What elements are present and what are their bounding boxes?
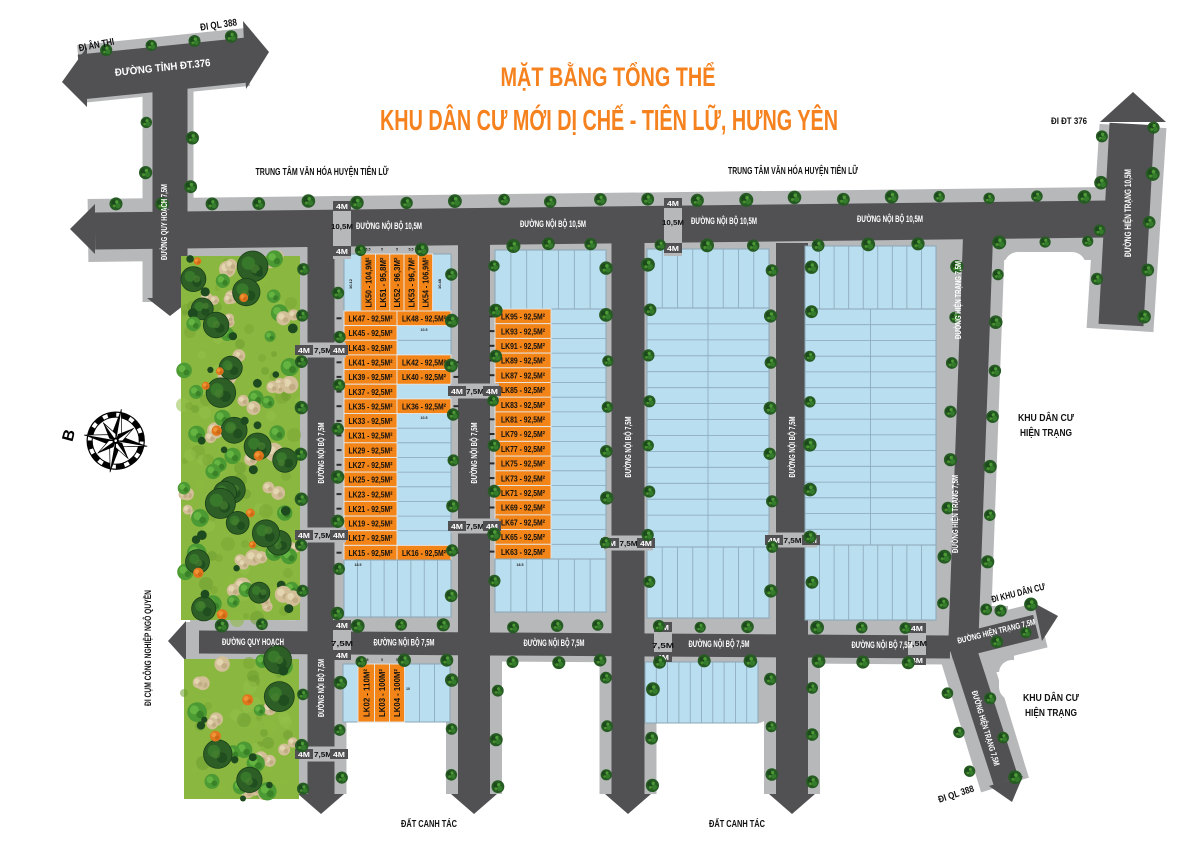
svg-text:4M: 4M bbox=[333, 348, 345, 355]
svg-text:4M: 4M bbox=[911, 626, 923, 633]
svg-text:LK43 - 92,5M²: LK43 - 92,5M² bbox=[349, 343, 393, 353]
svg-text:ĐI ĐT 376: ĐI ĐT 376 bbox=[1051, 116, 1087, 127]
svg-text:4M: 4M bbox=[486, 389, 498, 396]
svg-text:4M: 4M bbox=[298, 752, 310, 759]
svg-text:7,5M: 7,5M bbox=[784, 536, 802, 545]
svg-text:ĐƯỜNG HIỆN TRẠNG 7,5M: ĐƯỜNG HIỆN TRẠNG 7,5M bbox=[949, 475, 960, 553]
svg-text:LK75 - 92,5M²: LK75 - 92,5M² bbox=[501, 459, 545, 469]
svg-text:4M: 4M bbox=[667, 201, 679, 208]
svg-text:ĐƯỜNG NỘI BỘ 7,5M: ĐƯỜNG NỘI BỘ 7,5M bbox=[315, 423, 326, 484]
svg-text:ĐƯỜNG HIỆN TRẠNG 10,5M: ĐƯỜNG HIỆN TRẠNG 10,5M bbox=[1122, 169, 1133, 257]
svg-text:LK47 - 92,5M²: LK47 - 92,5M² bbox=[349, 314, 393, 324]
svg-text:LK77 - 92,5M²: LK77 - 92,5M² bbox=[501, 444, 545, 454]
svg-text:4M: 4M bbox=[298, 533, 310, 540]
svg-text:ĐƯỜNG NỘI BỘ 7,5M: ĐƯỜNG NỘI BỘ 7,5M bbox=[374, 637, 435, 648]
svg-text:KHU DÂN CƯ MỚI DỊ CHẾ - TIÊN L: KHU DÂN CƯ MỚI DỊ CHẾ - TIÊN LỮ, HƯNG YÊ… bbox=[380, 103, 838, 137]
svg-text:7,5M: 7,5M bbox=[620, 539, 638, 548]
svg-text:4M: 4M bbox=[640, 541, 652, 548]
svg-text:4M: 4M bbox=[333, 533, 345, 540]
svg-text:ĐƯỜNG NỘI BỘ 10,5M: ĐƯỜNG NỘI BỘ 10,5M bbox=[691, 215, 757, 226]
svg-text:ĐƯỜNG NỘI BỘ 10,5M: ĐƯỜNG NỘI BỘ 10,5M bbox=[356, 220, 422, 231]
svg-text:10.12: 10.12 bbox=[348, 278, 353, 289]
svg-text:ĐẤT CANH TÁC: ĐẤT CANH TÁC bbox=[401, 817, 457, 830]
svg-text:LK04 - 100M²: LK04 - 100M² bbox=[392, 669, 402, 717]
svg-text:HIỆN TRẠNG: HIỆN TRẠNG bbox=[1025, 706, 1077, 719]
svg-text:7,5M: 7,5M bbox=[466, 522, 484, 531]
svg-text:LK50 - 104,9M²: LK50 - 104,9M² bbox=[363, 257, 373, 307]
svg-text:LK02 - 110M²: LK02 - 110M² bbox=[361, 669, 371, 717]
svg-text:LK52 - 96,3M²: LK52 - 96,3M² bbox=[392, 257, 402, 307]
svg-text:LK42 - 92,5M²: LK42 - 92,5M² bbox=[402, 358, 446, 368]
svg-text:LK48 - 92,5M²: LK48 - 92,5M² bbox=[402, 314, 446, 324]
svg-text:LK39 - 92,5M²: LK39 - 92,5M² bbox=[349, 372, 393, 382]
svg-text:LK79 - 92,5M²: LK79 - 92,5M² bbox=[501, 429, 545, 439]
svg-text:ĐƯỜNG NỘI BỘ 7,5M: ĐƯỜNG NỘI BỘ 7,5M bbox=[786, 417, 797, 478]
svg-text:7,5M: 7,5M bbox=[314, 750, 332, 759]
svg-text:LK37 - 92,5M²: LK37 - 92,5M² bbox=[349, 387, 393, 397]
svg-text:LK89 - 92,5M²: LK89 - 92,5M² bbox=[501, 356, 545, 366]
svg-text:7,5M: 7,5M bbox=[331, 639, 353, 648]
svg-text:ĐƯỜNG HIỆN TRẠNG 7,5M: ĐƯỜNG HIỆN TRẠNG 7,5M bbox=[952, 261, 963, 339]
svg-text:ĐƯỜNG NỘI BỘ 10,5M: ĐƯỜNG NỘI BỘ 10,5M bbox=[520, 218, 586, 229]
svg-text:4M: 4M bbox=[336, 249, 348, 256]
svg-text:ĐẤT CANH TÁC: ĐẤT CANH TÁC bbox=[709, 817, 765, 830]
svg-text:7,5M: 7,5M bbox=[652, 641, 674, 650]
svg-text:5: 5 bbox=[396, 248, 398, 252]
svg-text:5: 5 bbox=[381, 248, 383, 252]
svg-text:4M: 4M bbox=[451, 389, 463, 396]
svg-text:LK40 - 92,5M²: LK40 - 92,5M² bbox=[402, 372, 446, 382]
svg-text:LK17 - 92,5M²: LK17 - 92,5M² bbox=[349, 533, 393, 543]
svg-text:LK19 - 92,5M²: LK19 - 92,5M² bbox=[349, 519, 393, 529]
svg-text:18.5: 18.5 bbox=[517, 563, 524, 567]
svg-text:ĐƯỜNG NỘI BỘ 10,5M: ĐƯỜNG NỘI BỘ 10,5M bbox=[857, 213, 923, 224]
svg-text:ĐƯỜNG NỘI BỘ 7,5M: ĐƯỜNG NỘI BỘ 7,5M bbox=[468, 423, 479, 484]
svg-text:LK65 - 92,5M²: LK65 - 92,5M² bbox=[501, 532, 545, 542]
svg-text:10: 10 bbox=[406, 687, 410, 691]
svg-text:LK87 - 92,5M²: LK87 - 92,5M² bbox=[501, 370, 545, 380]
svg-text:10,5M: 10,5M bbox=[331, 222, 353, 231]
svg-text:ĐƯỜNG NỘI BỘ 7,5M: ĐƯỜNG NỘI BỘ 7,5M bbox=[315, 659, 326, 717]
svg-text:ĐƯỜNG QUY HOẠCH 7,5M: ĐƯỜNG QUY HOẠCH 7,5M bbox=[158, 184, 169, 260]
svg-text:4M: 4M bbox=[298, 348, 310, 355]
svg-text:ĐI CỤM CÔNG NGHIỆP NGÔ QUYỀN: ĐI CỤM CÔNG NGHIỆP NGÔ QUYỀN bbox=[142, 590, 154, 706]
svg-text:LK83 - 92,5M²: LK83 - 92,5M² bbox=[501, 400, 545, 410]
svg-text:LK29 - 92,5M²: LK29 - 92,5M² bbox=[349, 445, 393, 455]
svg-text:LK69 - 92,5M²: LK69 - 92,5M² bbox=[501, 503, 545, 513]
svg-text:TRUNG TÂM VĂN HÓA HUYỆN TIÊN L: TRUNG TÂM VĂN HÓA HUYỆN TIÊN LỮ bbox=[728, 164, 858, 177]
svg-text:LK67 - 92,5M²: LK67 - 92,5M² bbox=[501, 517, 545, 527]
svg-text:18.5: 18.5 bbox=[355, 563, 362, 567]
svg-text:ĐƯỜNG NỘI BỘ 7,5M: ĐƯỜNG NỘI BỘ 7,5M bbox=[852, 639, 913, 650]
svg-text:LK45 - 92,5M²: LK45 - 92,5M² bbox=[349, 328, 393, 338]
svg-text:7,5M: 7,5M bbox=[314, 346, 332, 355]
svg-text:5,5: 5,5 bbox=[409, 248, 414, 252]
svg-text:4M: 4M bbox=[451, 524, 463, 531]
svg-text:ĐƯỜNG QUY HOẠCH: ĐƯỜNG QUY HOẠCH bbox=[222, 636, 284, 647]
svg-text:4M: 4M bbox=[667, 246, 679, 253]
svg-text:LK25 - 92,5M²: LK25 - 92,5M² bbox=[349, 475, 393, 485]
svg-text:10.5: 10.5 bbox=[421, 328, 428, 332]
svg-text:LK33 - 92,5M²: LK33 - 92,5M² bbox=[349, 416, 393, 426]
svg-text:ĐƯỜNG NỘI BỘ 7,5M: ĐƯỜNG NỘI BỘ 7,5M bbox=[689, 638, 750, 649]
svg-text:LK21 - 92,5M²: LK21 - 92,5M² bbox=[349, 504, 393, 514]
svg-text:10.5: 10.5 bbox=[421, 416, 428, 420]
svg-text:TRUNG TÂM VĂN HÓA HUYỆN TIÊN L: TRUNG TÂM VĂN HÓA HUYỆN TIÊN LỮ bbox=[256, 165, 389, 178]
svg-text:4M: 4M bbox=[336, 204, 348, 211]
svg-text:LK15 - 92,5M²: LK15 - 92,5M² bbox=[349, 548, 393, 558]
svg-text:LK71 - 92,5M²: LK71 - 92,5M² bbox=[501, 488, 545, 498]
svg-text:KHU DÂN CƯ: KHU DÂN CƯ bbox=[1023, 691, 1079, 704]
svg-text:LK31 - 92,5M²: LK31 - 92,5M² bbox=[349, 431, 393, 441]
svg-text:LK54 - 106,9M²: LK54 - 106,9M² bbox=[421, 257, 431, 307]
svg-text:LK41 - 92,5M²: LK41 - 92,5M² bbox=[349, 358, 393, 368]
svg-text:7,5M: 7,5M bbox=[466, 387, 484, 396]
svg-text:HIỆN TRẠNG: HIỆN TRẠNG bbox=[1020, 426, 1072, 439]
svg-text:LK03 - 100M²: LK03 - 100M² bbox=[377, 669, 387, 717]
svg-text:LK81 - 92,5M²: LK81 - 92,5M² bbox=[501, 415, 545, 425]
svg-text:LK91 - 92,5M²: LK91 - 92,5M² bbox=[501, 341, 545, 351]
svg-text:MẶT BẰNG TỔNG THỂ: MẶT BẰNG TỔNG THỂ bbox=[501, 61, 716, 92]
svg-text:LK85 - 92,5M²: LK85 - 92,5M² bbox=[501, 385, 545, 395]
svg-text:ĐƯỜNG NỘI BỘ 7,5M: ĐƯỜNG NỘI BỘ 7,5M bbox=[622, 417, 633, 478]
svg-text:LK35 - 92,5M²: LK35 - 92,5M² bbox=[349, 401, 393, 411]
svg-text:LK51 - 95,8M²: LK51 - 95,8M² bbox=[378, 257, 388, 307]
svg-text:LK63 - 92,5M²: LK63 - 92,5M² bbox=[501, 547, 545, 557]
svg-text:LK36 - 92,5M²: LK36 - 92,5M² bbox=[402, 401, 446, 411]
svg-text:KHU DÂN CƯ: KHU DÂN CƯ bbox=[1018, 411, 1074, 424]
svg-text:LK16 - 92,5M²: LK16 - 92,5M² bbox=[402, 548, 446, 558]
svg-text:5: 5 bbox=[381, 658, 383, 662]
svg-text:LK95 - 92,5M²: LK95 - 92,5M² bbox=[501, 312, 545, 322]
svg-text:LK27 - 92,5M²: LK27 - 92,5M² bbox=[349, 460, 393, 470]
svg-text:LK53 - 96,7M²: LK53 - 96,7M² bbox=[406, 257, 416, 307]
svg-text:4M: 4M bbox=[336, 623, 348, 630]
svg-text:4M: 4M bbox=[336, 653, 348, 660]
svg-text:10.48: 10.48 bbox=[437, 278, 442, 289]
svg-text:10,5M: 10,5M bbox=[662, 218, 684, 227]
svg-text:7,5M: 7,5M bbox=[314, 531, 332, 540]
svg-text:4M: 4M bbox=[333, 752, 345, 759]
svg-text:ĐƯỜNG NỘI BỘ 7,5M: ĐƯỜNG NỘI BỘ 7,5M bbox=[524, 637, 585, 648]
svg-text:LK93 - 92,5M²: LK93 - 92,5M² bbox=[501, 326, 545, 336]
svg-text:LK73 - 92,5M²: LK73 - 92,5M² bbox=[501, 473, 545, 483]
svg-text:LK23 - 92,5M²: LK23 - 92,5M² bbox=[349, 489, 393, 499]
